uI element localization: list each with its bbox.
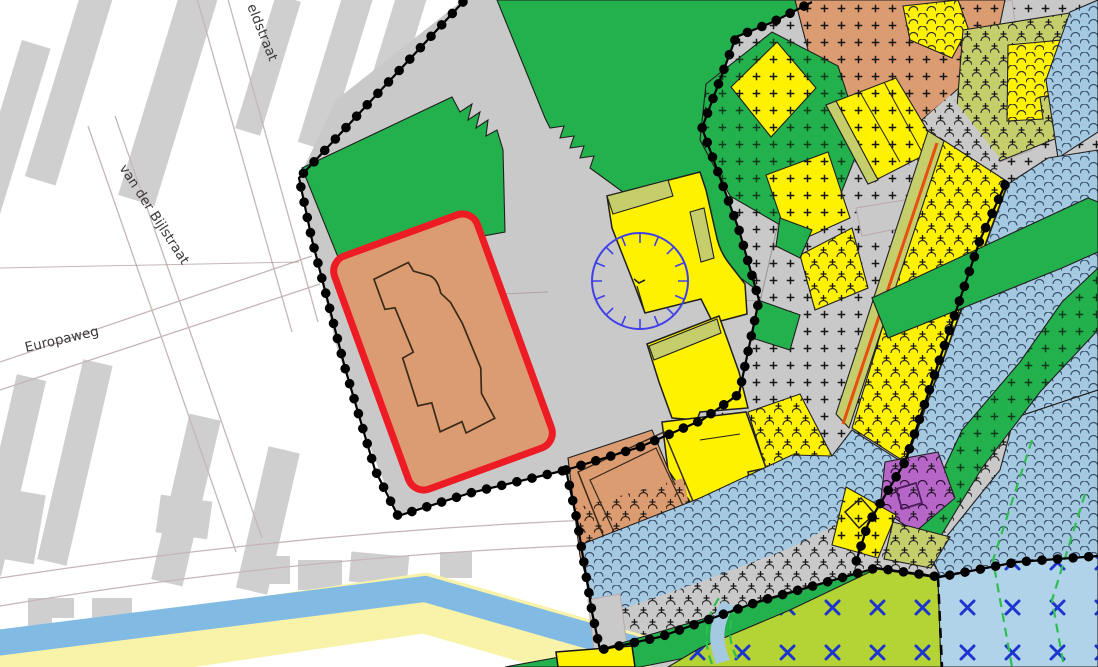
zoning-map-viewport[interactable]: eldstraat van der Bijlstraat Europaweg [0,0,1098,667]
zoning-map: eldstraat van der Bijlstraat Europaweg [0,0,1098,667]
